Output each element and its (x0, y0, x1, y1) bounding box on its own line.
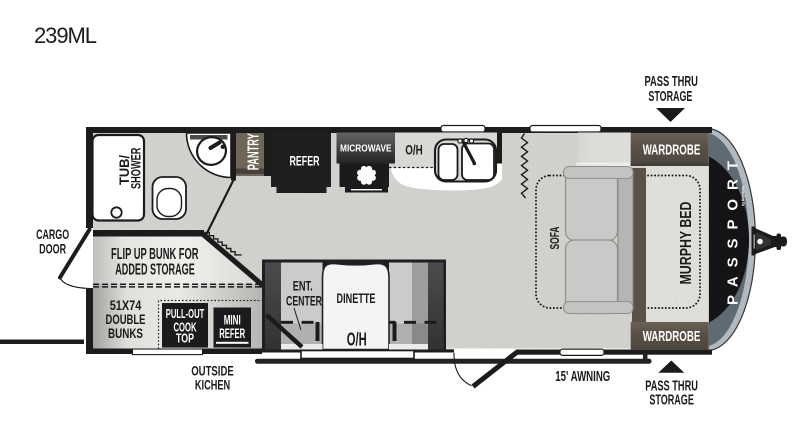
svg-text:STORAGE: STORAGE (649, 393, 694, 409)
svg-text:REFER: REFER (219, 326, 245, 341)
svg-text:MICROWAVE: MICROWAVE (340, 142, 392, 154)
svg-text:WARDROBE: WARDROBE (643, 328, 701, 345)
svg-text:ENT.: ENT. (293, 278, 313, 294)
svg-text:MURPHY BED: MURPHY BED (678, 202, 695, 285)
svg-text:REFER: REFER (290, 152, 320, 168)
svg-text:O/H: O/H (405, 141, 423, 157)
svg-text:STORAGE: STORAGE (648, 89, 692, 105)
svg-text:PANTRY: PANTRY (245, 133, 262, 170)
svg-text:WARDROBE: WARDROBE (643, 142, 701, 159)
svg-text:TOP: TOP (176, 331, 194, 346)
svg-text:ADDED STORAGE: ADDED STORAGE (115, 262, 195, 279)
svg-text:SHOWER: SHOWER (127, 148, 143, 189)
svg-text:FLIP UP BUNK FOR: FLIP UP BUNK FOR (111, 246, 199, 263)
svg-text:15' AWNING: 15' AWNING (555, 368, 610, 385)
svg-text:by Keystone: by Keystone (740, 185, 745, 206)
svg-text:KICHEN: KICHEN (195, 377, 230, 393)
svg-text:O/H: O/H (347, 330, 367, 350)
svg-text:SOFA: SOFA (547, 226, 562, 249)
svg-text:BUNKS: BUNKS (108, 325, 143, 341)
svg-text:239ML: 239ML (34, 23, 97, 48)
svg-text:DINETTE: DINETTE (337, 290, 376, 306)
svg-text:PASS THRU: PASS THRU (644, 74, 698, 90)
svg-text:DOOR: DOOR (39, 240, 66, 256)
svg-text:CENTER: CENTER (286, 293, 322, 309)
